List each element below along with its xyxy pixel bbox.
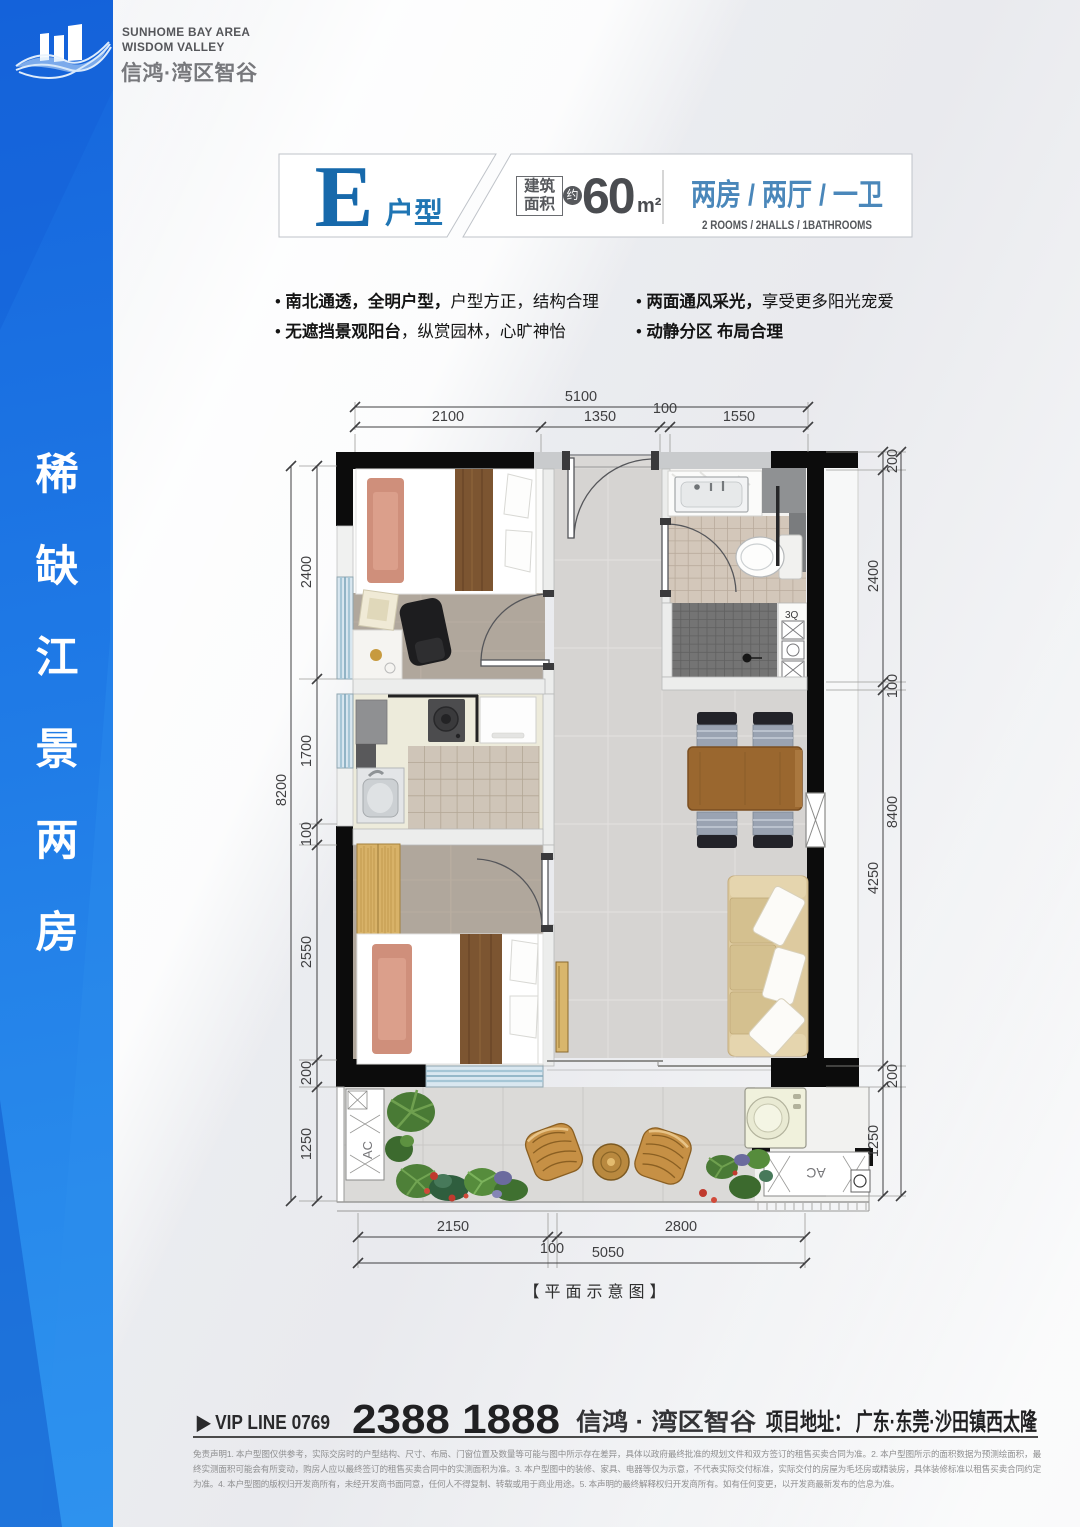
svg-text:▶ VIP LINE 0769: ▶ VIP LINE 0769 (196, 1412, 330, 1434)
svg-text:2400: 2400 (299, 556, 315, 588)
svg-text:【平面示意图】: 【平面示意图】 (523, 1282, 670, 1301)
svg-text:1550: 1550 (723, 409, 755, 425)
svg-text:1350: 1350 (584, 409, 616, 425)
svg-text:信鸿 · 湾区智谷: 信鸿 · 湾区智谷 (576, 1408, 757, 1436)
svg-text:100: 100 (653, 401, 677, 417)
svg-text:8200: 8200 (274, 774, 290, 806)
svg-text:200: 200 (885, 449, 901, 473)
svg-text:100: 100 (885, 674, 901, 698)
svg-text:100: 100 (299, 822, 315, 846)
svg-text:E: E (315, 149, 374, 246)
svg-text:户型: 户型 (385, 196, 443, 230)
svg-text:100: 100 (540, 1241, 564, 1257)
svg-text:两房 / 两厅 / 一卫: 两房 / 两厅 / 一卫 (691, 179, 883, 212)
svg-text:项目地址： 广东·东莞·沙田镇西太隆: 项目地址： 广东·东莞·沙田镇西太隆 (766, 1408, 1038, 1436)
svg-text:2400: 2400 (866, 560, 882, 592)
svg-text:200: 200 (299, 1061, 315, 1085)
svg-text:60: 60 (582, 168, 634, 224)
svg-text:1700: 1700 (299, 735, 315, 767)
svg-text:8400: 8400 (885, 796, 901, 828)
svg-text:200: 200 (885, 1064, 901, 1088)
svg-text:1250: 1250 (299, 1128, 315, 1160)
svg-text:AC: AC (806, 1165, 825, 1181)
svg-text:4250: 4250 (866, 862, 882, 894)
svg-text:2550: 2550 (299, 936, 315, 968)
svg-text:2150: 2150 (437, 1219, 469, 1235)
svg-text:2 ROOMS / 2HALLS / 1BATHROOMS: 2 ROOMS / 2HALLS / 1BATHROOMS (702, 220, 872, 232)
svg-text:3Q: 3Q (785, 610, 799, 621)
svg-text:2800: 2800 (665, 1219, 697, 1235)
svg-text:2100: 2100 (432, 409, 464, 425)
svg-text:AC: AC (360, 1141, 375, 1159)
svg-text:5100: 5100 (565, 389, 597, 405)
svg-text:1250: 1250 (866, 1125, 882, 1157)
svg-text:5050: 5050 (592, 1245, 624, 1261)
svg-text:m²: m² (637, 195, 662, 217)
